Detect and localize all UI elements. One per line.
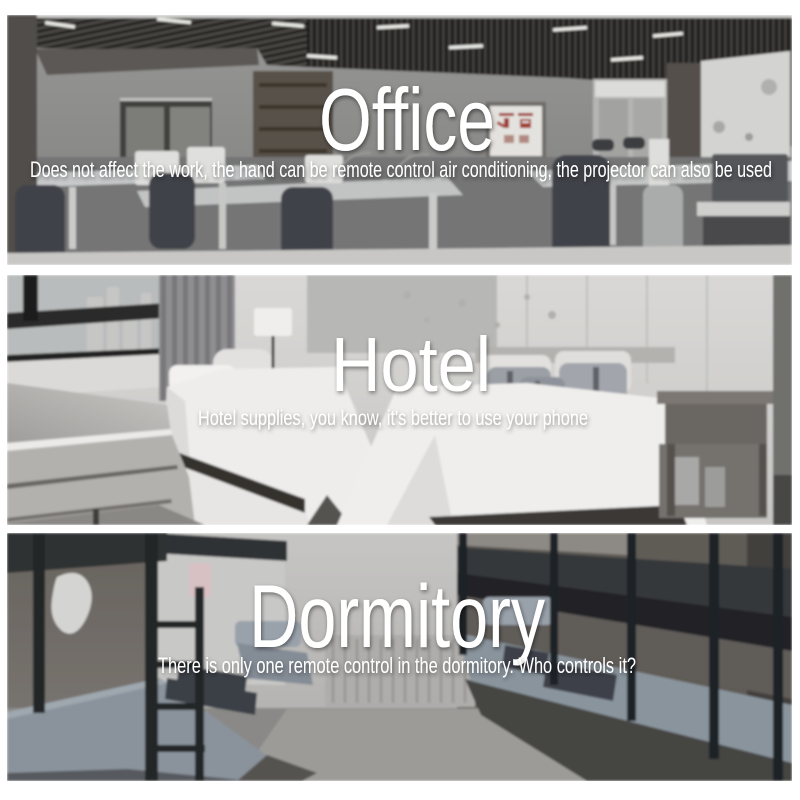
svg-text:Dormitory: Dormitory xyxy=(249,566,545,666)
svg-text:Office: Office xyxy=(319,70,495,169)
svg-text:There is only one remote contr: There is only one remote control in the … xyxy=(158,653,636,678)
svg-text:Does not affect the work, the: Does not affect the work, the hand can b… xyxy=(30,157,772,182)
svg-text:Hotel: Hotel xyxy=(331,322,491,408)
svg-text:Hotel supplies, you know, it's: Hotel supplies, you know, it's better to… xyxy=(198,407,588,430)
